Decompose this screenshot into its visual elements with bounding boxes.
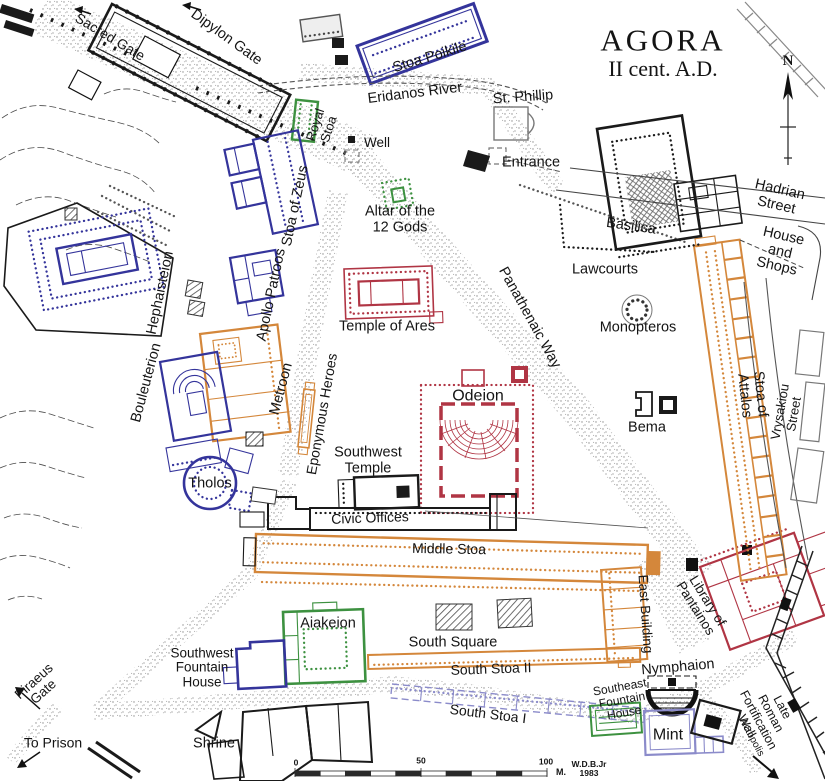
agora-map: Sacred GateDipylon GateStoa PoikileErida… [0,0,825,781]
map-drawing [0,0,825,781]
bld-black-square-2 [335,55,348,65]
bld-black-square-1 [332,38,344,48]
bld-sacred-gate [69,70,101,100]
terrace-line [425,511,648,528]
piraeus-gate-arrow [15,687,40,709]
bld-southwest-fountain-house [222,640,286,689]
bld-late-roman-wall [766,546,825,779]
bld-south-square-block-2 [497,598,532,628]
roads [10,12,795,772]
bld-bema [636,392,677,416]
bld-metroon-annex [246,432,263,446]
bld-east-blocks [791,330,825,503]
hill-contours-west [0,411,94,600]
bld-city-wall-northeast [737,2,825,97]
bld-aiakeion [283,601,366,684]
bld-south-stoa-ii [368,648,640,674]
bld-temple-of-ares [344,266,443,326]
bld-middle-stoa-south-colonnade [262,582,640,591]
bld-black-post-1 [686,558,698,571]
bld-south-square-block-1 [436,604,472,630]
bld-well-marker [348,136,355,143]
scale-bar [295,768,547,777]
road-corner-curve [798,226,821,300]
house-and-shops-boundary [740,240,804,268]
bld-shrine [196,712,221,739]
bld-bouleuterion [160,352,231,441]
bld-middle-stoa [243,534,661,584]
bld-bouleuterion-porch [166,439,221,472]
compass-north-arrow [780,72,796,165]
bld-southwest-temple [338,475,419,510]
bld-stoa-of-attalos [693,233,787,581]
road-southwest [98,482,290,710]
bld-gray-stoa-north [300,14,343,41]
road-to-prison [10,706,58,760]
bld-apollo-patroos [230,250,286,317]
bld-basilica [597,116,702,258]
dipylon-gate-arrow [182,2,201,10]
bld-odeion [421,366,533,513]
bld-library-of-pantainos [698,516,825,650]
bld-hephaisteion-precinct [4,186,205,336]
road-west [288,192,338,476]
bld-tholos [184,448,253,511]
bld-monopteros [622,295,652,325]
road-vrysakiou-street [744,278,808,568]
